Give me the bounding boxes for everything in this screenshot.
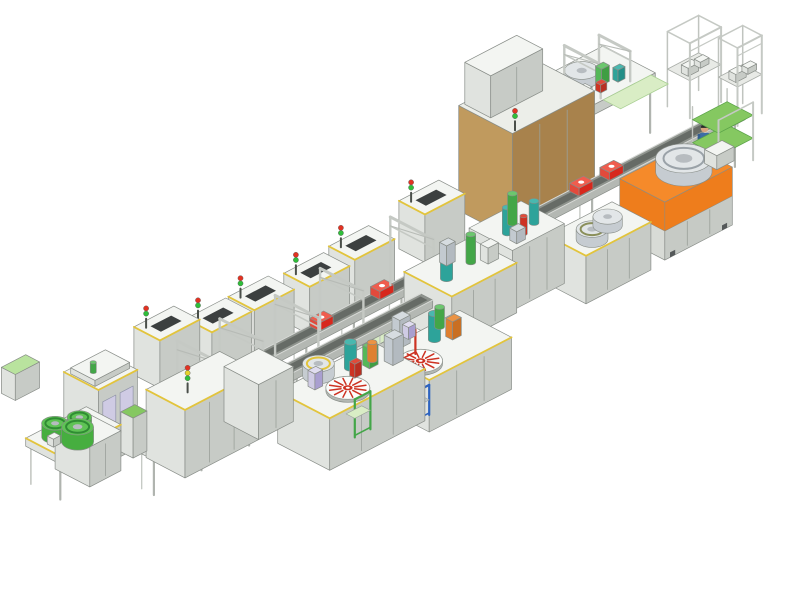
bowl-feeder-green-3 [62,419,94,451]
cell1-mech-red [350,358,362,378]
infeed-cell-cabinet-2 [224,349,293,440]
infeed-shuttle [1,355,39,401]
cell1-mech-steel [384,330,403,366]
cell3-fixture-1 [440,238,456,266]
cell2-mech-purple [402,321,415,340]
supply-cart [121,405,147,459]
rear-deco-red [596,79,607,93]
bowl-feeder-mid-2 [593,209,622,233]
cell3-fixture-2 [480,239,498,265]
cell3b-pillar-3 [529,199,539,226]
cell3-pillar-2 [466,232,476,265]
rotary-dial-table-1 [326,376,370,402]
cell2-mech-green [435,304,445,329]
cell1-mech-orange [367,340,377,363]
scene-canvas [0,0,800,600]
storage-rack-rear [667,15,721,118]
inspection-top-deco [90,361,96,374]
cell3b-pillar-2 [508,191,518,226]
cell2-mech-orange [446,314,462,340]
bowl-feeder-output [656,144,712,186]
rear-deco-teal [613,64,625,82]
assembly-line-illustration [0,0,800,600]
cell3b-fixture [510,224,526,244]
cell1-mech-purple [308,366,323,390]
